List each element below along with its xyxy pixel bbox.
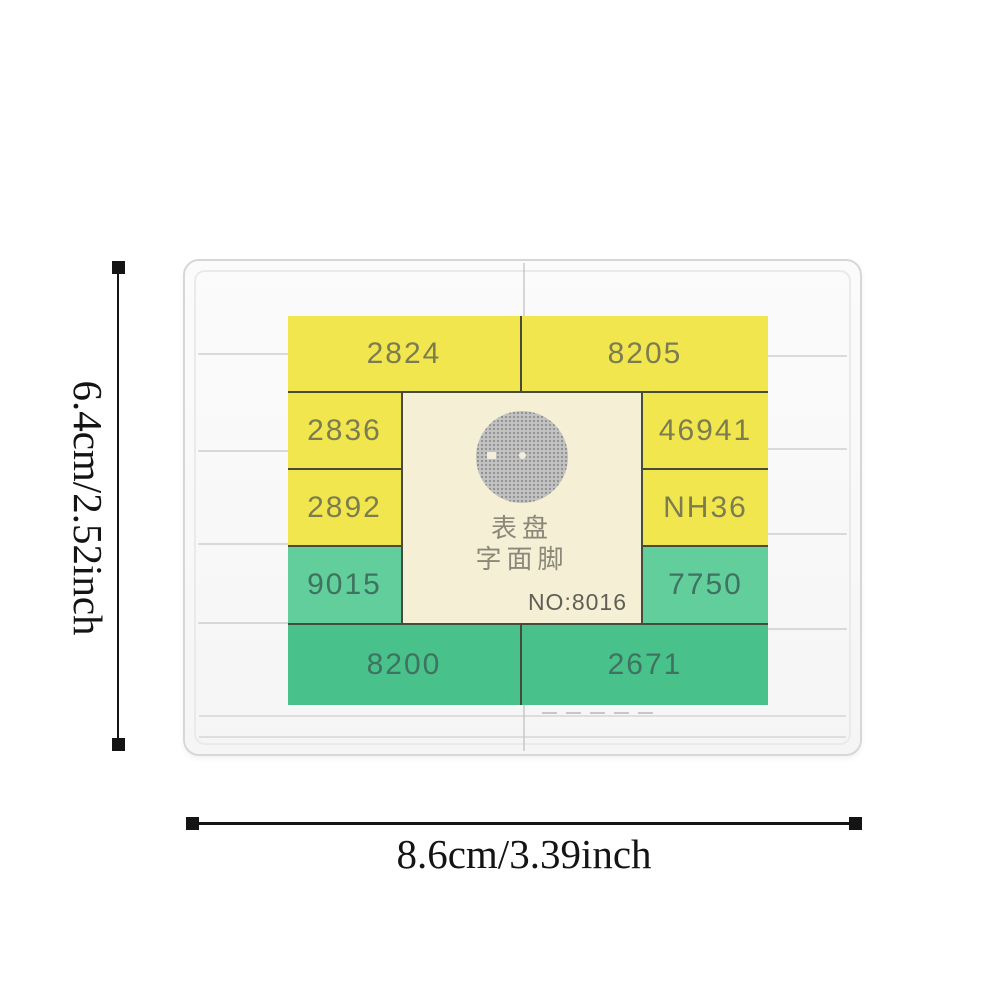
product-photo: 2824 8205 2836 46941 2892 NH36 9015 7750… — [0, 0, 1000, 1000]
box-lip-line — [199, 736, 846, 738]
label-title-line1: 表盘 — [403, 513, 641, 544]
dial-foot-dot-mark — [519, 452, 526, 459]
label-cell-7750: 7750 — [641, 547, 768, 623]
compartment-divider-line — [198, 353, 290, 355]
width-dimension-right-cap — [849, 817, 862, 830]
compartment-divider-line — [767, 533, 847, 535]
compartment-divider-line — [198, 622, 290, 624]
height-dimension-bottom-cap — [112, 738, 125, 751]
dial-foot-square-mark — [487, 452, 496, 459]
label-cell-2892: 2892 — [288, 470, 403, 547]
height-dimension-label: 6.4cm/2.52inch — [64, 380, 112, 635]
label-cell-2836: 2836 — [288, 393, 403, 470]
box-lip-line — [199, 715, 846, 717]
label-cell-2671: 2671 — [522, 623, 768, 705]
compartment-divider-line — [198, 543, 290, 545]
label-cell-nh36: NH36 — [641, 470, 768, 547]
width-dimension-left-cap — [186, 817, 199, 830]
width-dimension-label: 8.6cm/3.39inch — [396, 830, 651, 878]
label-cell-9015: 9015 — [288, 547, 403, 623]
height-dimension-line — [117, 264, 119, 747]
label-cell-8200: 8200 — [288, 623, 522, 705]
compartment-divider-line — [767, 355, 847, 357]
compartment-divider-line — [198, 450, 290, 452]
label-title: 表盘 字面脚 — [403, 513, 641, 575]
label-model-number: NO:8016 — [528, 589, 627, 616]
label-cell-46941: 46941 — [641, 393, 768, 470]
watch-dial-graphic — [476, 411, 568, 503]
label-cell-2824: 2824 — [288, 316, 522, 393]
label-center-panel: 表盘 字面脚 NO:8016 — [403, 393, 641, 623]
movement-number-label: 2824 8205 2836 46941 2892 NH36 9015 7750… — [288, 316, 768, 705]
compartment-divider-line — [767, 628, 847, 630]
height-dimension-top-cap — [112, 261, 125, 274]
compartment-divider-line — [767, 448, 847, 450]
label-cell-8205: 8205 — [522, 316, 768, 393]
label-title-line2: 字面脚 — [403, 544, 641, 575]
width-dimension-line — [190, 822, 858, 825]
box-hinge-marks — [542, 712, 653, 714]
